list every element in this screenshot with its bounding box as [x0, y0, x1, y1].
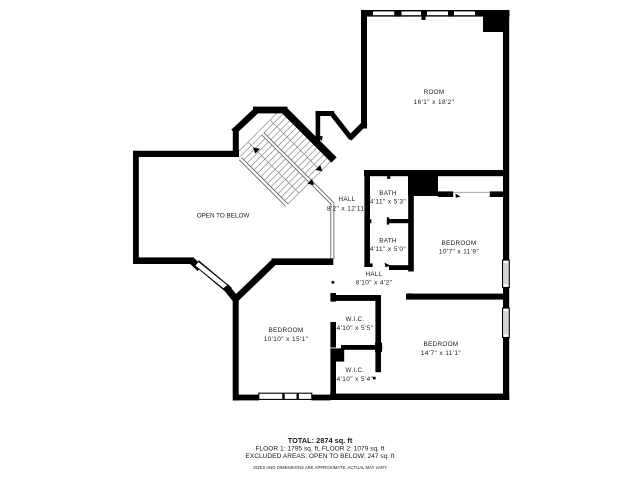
- svg-text:16'1" x 18'2": 16'1" x 18'2": [414, 99, 455, 106]
- svg-text:SIZES AND DIMENSIONS ARE APPRO: SIZES AND DIMENSIONS ARE APPROXIMATE, AC…: [253, 465, 387, 470]
- svg-text:4'11" x 5'0": 4'11" x 5'0": [370, 246, 407, 253]
- svg-text:HALL: HALL: [339, 196, 356, 203]
- svg-text:BEDROOM: BEDROOM: [268, 327, 303, 334]
- svg-text:8'2" x 12'11": 8'2" x 12'11": [327, 206, 368, 213]
- svg-text:4'10" x 5'4": 4'10" x 5'4": [337, 376, 374, 383]
- svg-text:14'7" x 11'1": 14'7" x 11'1": [421, 350, 462, 357]
- svg-text:ROOM: ROOM: [424, 89, 445, 96]
- svg-text:HALL: HALL: [366, 271, 383, 278]
- svg-text:TOTAL: 2874 sq. ft: TOTAL: 2874 sq. ft: [288, 436, 353, 445]
- svg-text:BATH: BATH: [379, 190, 397, 197]
- svg-text:EXCLUDED AREAS: OPEN TO BELOW:: EXCLUDED AREAS: OPEN TO BELOW: 247 sq. f…: [245, 453, 394, 460]
- svg-text:4'11" x 5'3": 4'11" x 5'3": [370, 199, 407, 206]
- svg-text:BEDROOM: BEDROOM: [441, 240, 476, 247]
- svg-text:FLOOR 1: 1795 sq. ft, FLOOR 2:: FLOOR 1: 1795 sq. ft, FLOOR 2: 1079 sq. …: [255, 446, 384, 453]
- svg-text:W.I.C.: W.I.C.: [346, 367, 365, 374]
- svg-text:4'10" x 5'5": 4'10" x 5'5": [337, 325, 374, 332]
- svg-text:8'10" x 4'2": 8'10" x 4'2": [356, 280, 393, 287]
- svg-text:10'10" x 15'1": 10'10" x 15'1": [264, 336, 309, 343]
- svg-text:W.I.C.: W.I.C.: [346, 316, 365, 323]
- svg-text:OPEN TO BELOW: OPEN TO BELOW: [197, 212, 250, 219]
- svg-text:BEDROOM: BEDROOM: [423, 341, 458, 348]
- svg-text:10'7" x 11'9": 10'7" x 11'9": [439, 249, 480, 256]
- svg-text:BATH: BATH: [379, 238, 397, 245]
